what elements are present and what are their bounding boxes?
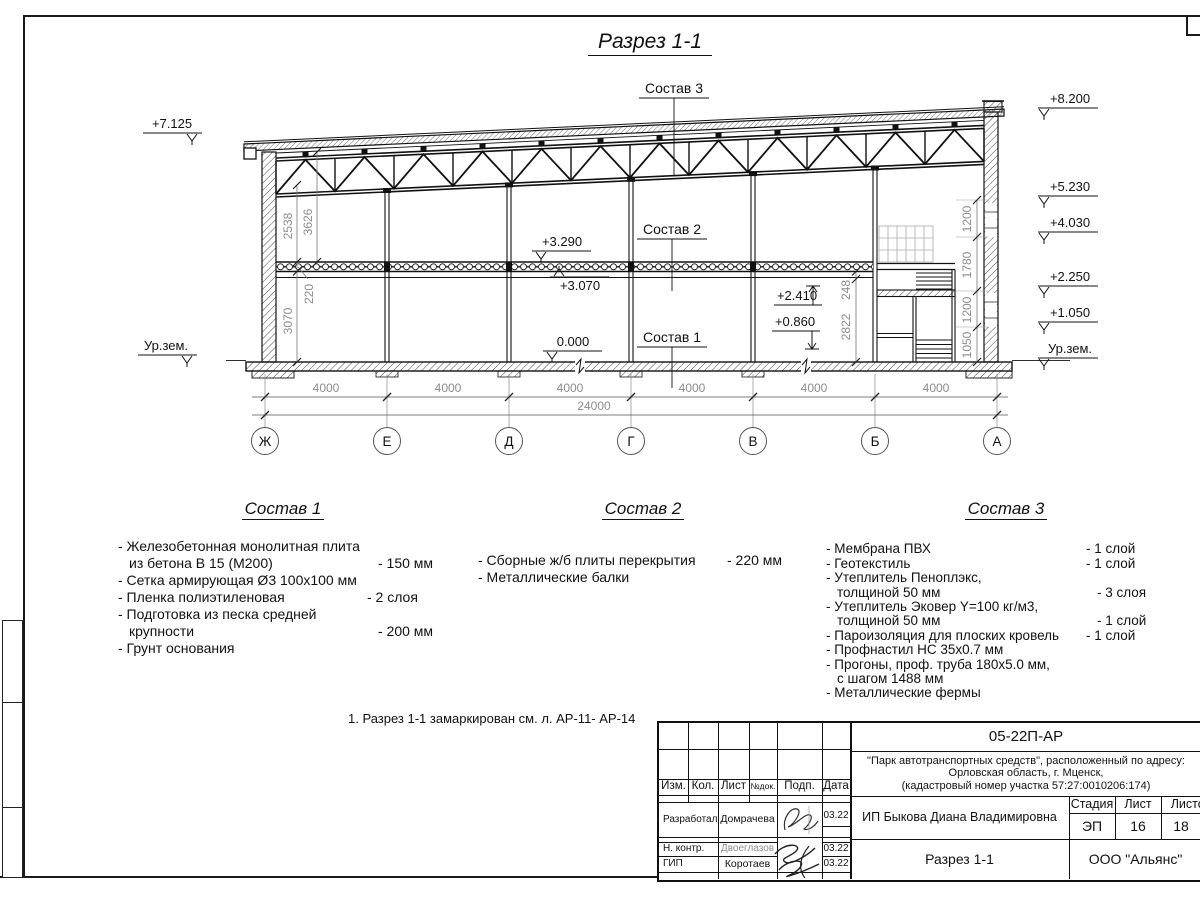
composition-rows: - Сборные ж/б плиты перекрытия- 220 мм- …: [478, 552, 808, 586]
dim-3070: 3070: [281, 307, 295, 334]
leader-sostav-2: Состав 2: [643, 221, 701, 237]
stamp-role: Разработал: [660, 802, 717, 837]
stamp-col-list: Лист: [718, 779, 749, 795]
stamp-doc-number: 05-22П-АР: [850, 723, 1200, 751]
left-wall: [262, 152, 276, 362]
elevation-marks-left: +7.125 Ур.зем.: [138, 116, 202, 367]
elevation-stair-down: +0.860: [775, 314, 815, 329]
stamp-company: ООО "Альянс": [1069, 839, 1200, 879]
stamp-name: Домрачева: [718, 802, 777, 837]
composition-item-text: - Геотекстиль: [826, 557, 1086, 571]
composition-item-value: [727, 569, 808, 586]
composition-item: - Прогоны, проф. труба 180х5.0 мм,: [826, 658, 1186, 672]
floor-slab: [276, 262, 873, 278]
ground-slab: [226, 359, 1070, 378]
composition-item: - Сборные ж/б плиты перекрытия- 220 мм: [478, 552, 808, 569]
frame-margin-box: [2, 620, 23, 704]
sheet-note: 1. Разрез 1-1 замаркирован см. л. АР-11-…: [348, 711, 635, 726]
dim-2822: 2822: [839, 313, 853, 340]
stamp-project-line: "Парк автотранспортных средств", располо…: [867, 755, 1185, 768]
stamp-sheets-value: 18: [1161, 813, 1200, 839]
composition-item-text: - Железобетонная монолитная плита: [118, 538, 367, 555]
composition-item-text: - Сетка армирующая Ø3 100х100 мм: [118, 572, 367, 589]
elevation-zero: 0.000: [557, 334, 590, 349]
composition-item-text: - Металлические фермы: [826, 686, 1086, 700]
composition-2: Состав 2 - Сборные ж/б плиты перекрытия-…: [478, 500, 808, 586]
composition-item-value: [367, 606, 448, 623]
dim-span: 4000: [435, 381, 462, 395]
composition-item-text: - Прогоны, проф. труба 180х5.0 мм,: [826, 658, 1086, 672]
elevation-right: +2.250: [1050, 269, 1090, 284]
dimensions-bottom: 4000 4000 4000 4000 4000 4000 24000: [252, 374, 1008, 427]
dim-span: 4000: [923, 381, 950, 395]
axis-label: В: [748, 434, 757, 449]
elevation-slab-top: +3.290: [542, 234, 582, 249]
composition-item-text: - Утеплитель Эковер Y=100 кг/м3,: [826, 600, 1086, 614]
frame-margin-box: [2, 807, 23, 878]
axis-label: Г: [627, 434, 635, 449]
composition-item-text: - Мембрана ПВХ: [826, 542, 1086, 556]
composition-item-value: - 200 мм: [378, 623, 448, 640]
stamp-col-ndok: №док.: [749, 779, 777, 795]
composition-item-text: - Профнастил НС 35х0.7 мм: [826, 643, 1086, 657]
composition-item-text: - Пароизоляция для плоских кровель: [826, 629, 1086, 643]
composition-item-value: [1086, 686, 1186, 700]
elevation-right: +1.050: [1050, 305, 1090, 320]
composition-item-text: - Сборные ж/б плиты перекрытия: [478, 552, 727, 569]
leader-sostav-3: Состав 3: [645, 80, 703, 96]
elevation-stair-up: +2.410: [777, 288, 817, 303]
dimensions-right-inner: 248 2822: [839, 268, 860, 367]
leader-sostav-1: Состав 1: [643, 329, 701, 345]
composition-item: - Мембрана ПВХ- 1 слой: [826, 542, 1186, 556]
stamp-name: Коротаев: [718, 856, 777, 872]
dim-3626: 3626: [301, 208, 315, 235]
axis-label: Б: [871, 434, 880, 449]
signature: [779, 804, 821, 836]
axis-label: А: [992, 434, 1001, 449]
stamp-project-line: (кадастровый номер участка 57:27:0010206…: [902, 780, 1151, 793]
composition-2-title: Состав 2: [478, 500, 808, 517]
title-block: Изм. Кол. Лист №док. Подп. Дата Разработ…: [657, 721, 1200, 882]
composition-rows: - Железобетонная монолитная плитаиз бето…: [118, 538, 448, 657]
stamp-col-data: Дата: [822, 779, 850, 795]
stamp-date: 03.22: [822, 856, 850, 872]
composition-item: - Пленка полиэтиленовая- 2 слоя: [118, 589, 448, 606]
stamp-sheets-label: Листов: [1161, 796, 1200, 813]
axis-circles: Ж Е Д Г В Б А: [252, 428, 1011, 455]
elevation-right: +8.200: [1050, 91, 1090, 106]
elevation-right: +4.030: [1050, 215, 1090, 230]
dim-stair: 1200: [960, 205, 974, 232]
composition-3: Состав 3 - Мембрана ПВХ- 1 слой- Геотекс…: [826, 502, 1186, 701]
composition-item: толщиной 50 мм- 1 слой: [826, 614, 1186, 628]
dim-220: 220: [302, 284, 316, 304]
stamp-sheet-label: Лист: [1115, 796, 1161, 813]
elevation-left-top: +7.125: [152, 116, 192, 131]
composition-item-value: - 1 слой: [1086, 557, 1186, 571]
composition-item: - Геотекстиль- 1 слой: [826, 557, 1186, 571]
composition-item-text: с шагом 1488 мм: [826, 672, 1097, 686]
dim-span: 4000: [801, 381, 828, 395]
dim-2538: 2538: [281, 212, 295, 239]
stamp-sheet-title: Разрез 1-1: [850, 839, 1069, 879]
composition-1-title: Состав 1: [118, 500, 448, 517]
frame-margin-box: [2, 702, 23, 809]
dim-span: 4000: [679, 381, 706, 395]
composition-item-text: толщиной 50 мм: [826, 586, 1097, 600]
stamp-name: Двоеглазов: [718, 842, 777, 856]
stamp-col-podp: Подп.: [777, 779, 822, 795]
stamp-sheet-value: 16: [1115, 813, 1161, 839]
stamp-role: ГИП: [660, 856, 717, 872]
elevation-left-ground: Ур.зем.: [144, 338, 188, 353]
stamp-col-kol: Кол.: [688, 779, 718, 795]
dimensions-stair: 1200 1780 1200 1050: [956, 196, 988, 366]
composition-item-value: - 2 слоя: [367, 589, 448, 606]
composition-item: из бетона В 15 (М200)- 150 мм: [118, 555, 448, 572]
stamp-client: ИП Быкова Диана Владимировна: [850, 796, 1069, 839]
composition-item: - Подготовка из песка средней: [118, 606, 448, 623]
composition-item-text: толщиной 50 мм: [826, 614, 1097, 628]
composition-item: - Сетка армирующая Ø3 100х100 мм: [118, 572, 448, 589]
composition-item-text: - Металлические балки: [478, 569, 727, 586]
dim-stair: 1200: [960, 296, 974, 323]
composition-item: - Металлические балки: [478, 569, 808, 586]
dim-total: 24000: [577, 399, 611, 413]
stamp-stage-label: Стадия: [1069, 796, 1115, 813]
elevation-marks-right: +8.200 +5.230 +4.030 +2.250 +1.050 Ур.зе…: [1038, 91, 1098, 370]
stamp-col-izm: Изм.: [659, 779, 688, 795]
elevation-slab-bottom: +3.070: [560, 278, 600, 293]
dim-span: 4000: [313, 381, 340, 395]
composition-item: крупности- 200 мм: [118, 623, 448, 640]
composition-item-value: - 1 слой: [1086, 629, 1186, 643]
composition-item-value: [367, 640, 448, 657]
staircase: [877, 226, 955, 362]
dim-span: 4000: [557, 381, 584, 395]
composition-rows: - Мембрана ПВХ- 1 слой- Геотекстиль- 1 с…: [826, 542, 1186, 700]
dim-stair: 1780: [960, 251, 974, 278]
axis-label: Е: [382, 434, 391, 449]
composition-item-value: [1086, 643, 1186, 657]
composition-item-value: - 1 слой: [1097, 614, 1186, 628]
composition-item: - Железобетонная монолитная плита: [118, 538, 448, 555]
stamp-date: 03.22: [822, 808, 850, 824]
composition-item: - Утеплитель Эковер Y=100 кг/м3,: [826, 600, 1186, 614]
composition-item-text: - Пленка полиэтиленовая: [118, 589, 367, 606]
composition-item-value: [1097, 672, 1186, 686]
dim-248: 248: [839, 280, 853, 300]
composition-3-title: Состав 3: [826, 502, 1186, 516]
stamp-project-line: Орловская область, г. Мценск,: [949, 767, 1104, 780]
composition-item: - Металлические фермы: [826, 686, 1186, 700]
composition-item-value: - 220 мм: [727, 552, 808, 569]
composition-item-value: [367, 572, 448, 589]
composition-item-value: - 1 слой: [1086, 542, 1186, 556]
axis-label: Д: [504, 434, 513, 449]
composition-item-text: - Подготовка из песка средней: [118, 606, 367, 623]
composition-1: Состав 1 - Железобетонная монолитная пли…: [118, 500, 448, 657]
composition-item-value: [1086, 658, 1186, 672]
axis-label: Ж: [259, 434, 272, 449]
stamp-role: Н. контр.: [660, 842, 717, 856]
composition-item: - Грунт основания: [118, 640, 448, 657]
composition-item-value: - 3 слоя: [1097, 586, 1186, 600]
composition-item-value: [1086, 571, 1186, 585]
stair-window-grid: [879, 226, 933, 262]
composition-item-text: - Грунт основания: [118, 640, 367, 657]
dim-stair: 1050: [960, 331, 974, 358]
stamp-date: 03.22: [822, 842, 850, 856]
composition-item: - Утеплитель Пеноплэкс,: [826, 571, 1186, 585]
composition-item-value: - 150 мм: [378, 555, 448, 572]
composition-item: с шагом 1488 мм: [826, 672, 1186, 686]
composition-item-value: [367, 538, 448, 555]
composition-item-text: - Утеплитель Пеноплэкс,: [826, 571, 1086, 585]
composition-item-value: [1086, 600, 1186, 614]
elevation-right: +5.230: [1050, 179, 1090, 194]
composition-item: толщиной 50 мм- 3 слоя: [826, 586, 1186, 600]
composition-item-text: из бетона В 15 (М200): [118, 555, 378, 572]
composition-item-text: крупности: [118, 623, 378, 640]
section-drawing: Состав 3 Состав 2 Состав 1 +7.125 Ур.зем…: [0, 0, 1200, 475]
elevation-right-ground: Ур.зем.: [1048, 341, 1092, 356]
drawing-sheet: { "page": { "title": "Разрез 1-1", "note…: [0, 0, 1200, 900]
stamp-project: "Парк автотранспортных средств", располо…: [852, 752, 1200, 795]
composition-item: - Профнастил НС 35х0.7 мм: [826, 643, 1186, 657]
signature: [771, 840, 823, 880]
composition-item: - Пароизоляция для плоских кровель- 1 сл…: [826, 629, 1186, 643]
stamp-stage-value: ЭП: [1069, 813, 1115, 839]
